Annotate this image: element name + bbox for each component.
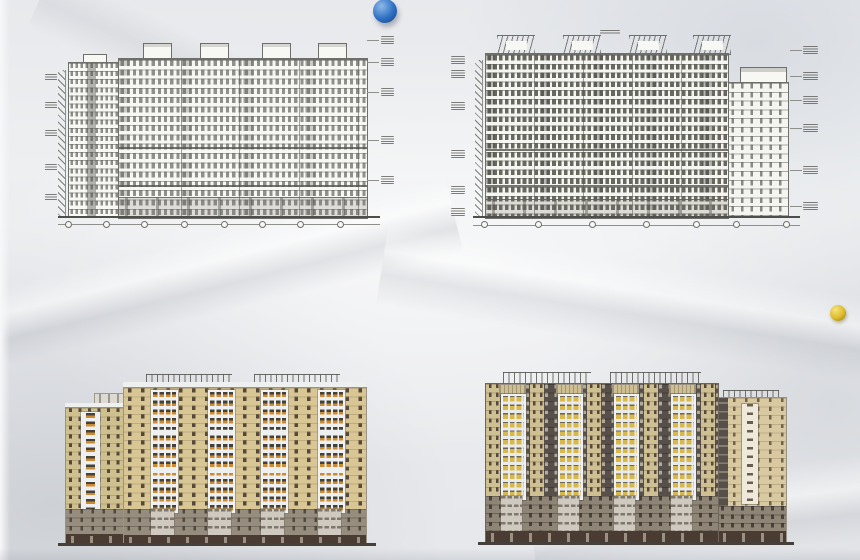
- annotation-smudge: [451, 208, 465, 216]
- blue-pushpin: [373, 0, 397, 23]
- beige-strip: [644, 384, 658, 496]
- axis-marker: [337, 221, 344, 228]
- section-line: [632, 55, 633, 218]
- level-dimension-zigzag: [475, 60, 483, 216]
- section-line: [583, 55, 584, 218]
- axis-marker: [783, 221, 790, 228]
- leader-line: [367, 180, 379, 181]
- leader-line: [367, 92, 379, 93]
- section-line: [181, 60, 182, 218]
- beige-strip: [486, 384, 500, 496]
- bay-lower-column: [501, 496, 522, 531]
- annotation-smudge: [381, 58, 394, 66]
- window-bay: [151, 390, 178, 513]
- annotation-smudge: [45, 74, 57, 81]
- main-facade: [485, 383, 719, 544]
- annex-facade: [727, 82, 789, 218]
- facade-lower-zone: [66, 509, 124, 534]
- window-bay: [614, 394, 639, 500]
- annotation-smudge: [381, 36, 394, 44]
- paper-photo-background: [0, 0, 860, 560]
- roof-truss: [563, 35, 601, 55]
- beige-strip: [701, 384, 715, 496]
- axis-marker: [181, 221, 188, 228]
- leader-line: [790, 50, 802, 51]
- annotation-smudge: [803, 202, 818, 210]
- annotation-smudge: [803, 46, 818, 54]
- window-bay: [742, 404, 758, 504]
- axis-marker: [733, 221, 740, 228]
- annotation-smudge: [803, 96, 818, 104]
- stair-tower-facade: [68, 62, 120, 218]
- annotation-smudge: [45, 194, 57, 201]
- bay-lower-column: [318, 509, 341, 535]
- annotation-smudge: [803, 124, 818, 132]
- slab-line: [119, 147, 367, 149]
- ground-line: [478, 542, 794, 545]
- leader-line: [790, 100, 802, 101]
- leader-line: [790, 170, 802, 171]
- side-wing-facade: [65, 407, 125, 545]
- paper-edge-highlight: [0, 0, 10, 560]
- yellow-pushpin: [830, 305, 846, 321]
- paper-edge-shadow: [0, 548, 860, 560]
- slab-line: [486, 149, 728, 151]
- facade-window-grid: [485, 53, 729, 219]
- window-bay: [318, 390, 345, 513]
- dimension-line: [473, 225, 800, 226]
- annotation-smudge: [381, 88, 394, 96]
- facade-lower-zone: [718, 506, 786, 531]
- annotation-smudge: [381, 176, 394, 184]
- axis-marker: [221, 221, 228, 228]
- bay-divider: [153, 470, 176, 473]
- leader-line: [367, 40, 379, 41]
- axis-marker: [693, 221, 700, 228]
- window-bay: [558, 394, 583, 500]
- level-dimension-zigzag: [58, 70, 66, 218]
- bay-lower-column: [671, 496, 692, 531]
- beige-strip: [530, 384, 544, 496]
- slab-line: [119, 185, 367, 187]
- ground-line: [58, 543, 376, 546]
- ground-line: [58, 216, 380, 218]
- window-bay: [671, 394, 696, 500]
- annotation-smudge: [451, 186, 465, 194]
- ground-line: [473, 216, 800, 218]
- leader-line: [790, 128, 802, 129]
- colour-rendering-bottom-left: [58, 362, 398, 548]
- roof-truss: [629, 35, 667, 55]
- bay-lower-column: [261, 509, 284, 535]
- drawing-title-smudge: [600, 30, 620, 35]
- ground-floor-band: [119, 197, 367, 218]
- axis-marker: [103, 221, 110, 228]
- window-bay: [501, 394, 526, 500]
- annotation-smudge: [451, 102, 465, 110]
- technical-elevation-top-left: [45, 22, 395, 232]
- axis-marker: [643, 221, 650, 228]
- annotation-smudge: [451, 56, 465, 64]
- bay-divider: [153, 430, 176, 433]
- bay-divider: [263, 430, 286, 433]
- annotation-smudge: [381, 136, 394, 144]
- annotation-smudge: [451, 70, 465, 78]
- bay-lower-column: [151, 509, 174, 535]
- main-facade: [123, 387, 367, 545]
- axis-marker: [259, 221, 266, 228]
- leader-line: [790, 76, 802, 77]
- annotation-smudge: [45, 164, 57, 171]
- axis-marker: [535, 221, 542, 228]
- section-line: [239, 60, 240, 218]
- window-bay: [261, 390, 288, 513]
- annotation-smudge: [45, 130, 57, 137]
- section-line: [534, 55, 535, 218]
- bay-divider: [320, 470, 343, 473]
- axis-marker: [481, 221, 488, 228]
- roof-truss: [693, 35, 731, 55]
- section-line: [299, 60, 300, 218]
- window-bay: [81, 412, 100, 512]
- bay-lower-column: [614, 496, 635, 531]
- annotation-smudge: [803, 166, 818, 174]
- bay-divider: [320, 430, 343, 433]
- section-line: [681, 55, 682, 218]
- leader-line: [367, 62, 379, 63]
- slab-line: [486, 185, 728, 187]
- beige-strip: [587, 384, 601, 496]
- axis-marker: [65, 221, 72, 228]
- bay-divider: [263, 470, 286, 473]
- annex-facade: [717, 397, 787, 544]
- leader-line: [367, 140, 379, 141]
- bay-divider: [210, 470, 233, 473]
- annotation-smudge: [45, 102, 57, 109]
- roof-truss: [497, 35, 535, 55]
- annotation-smudge: [451, 150, 465, 158]
- bay-divider: [210, 430, 233, 433]
- bay-lower-column: [208, 509, 231, 535]
- annotation-smudge: [803, 72, 818, 80]
- axis-marker: [589, 221, 596, 228]
- window-bay: [208, 390, 235, 513]
- bay-lower-column: [558, 496, 579, 531]
- leader-line: [790, 206, 802, 207]
- section-line: [358, 60, 359, 218]
- axis-marker: [141, 221, 148, 228]
- axis-marker: [297, 221, 304, 228]
- technical-elevation-top-right: [445, 18, 845, 232]
- colour-rendering-bottom-right: [477, 360, 807, 548]
- facade-window-grid: [118, 58, 368, 219]
